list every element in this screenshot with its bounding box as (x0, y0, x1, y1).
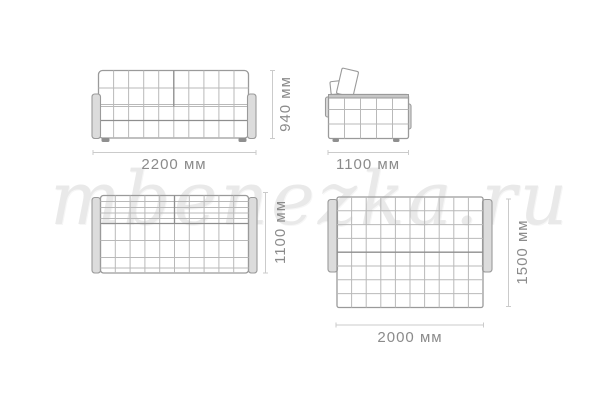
side-body-outline (329, 95, 409, 139)
folded-fold-edge-line (101, 196, 249, 224)
front-leg-left (102, 138, 110, 142)
front-height-dimension-line (270, 71, 275, 139)
folded-depth-dimension-line (263, 193, 268, 274)
side-leg-left (333, 139, 340, 143)
unfolded-width-dimension-line (336, 323, 484, 328)
front-armrest-right (248, 94, 257, 139)
sofa-top-view-folded-drawing (92, 193, 268, 274)
sofa-dimensions-diagram: mbenezka.ru (0, 0, 600, 400)
side-width-label: 1100 мм (308, 156, 428, 174)
unfolded-depth-label: 1500 мм (514, 212, 532, 292)
unfolded-armrest-right (483, 200, 493, 273)
sofa-side-view-drawing (326, 68, 412, 155)
technical-drawing-layer (0, 0, 600, 400)
unfolded-armrest-left (328, 200, 338, 273)
front-leg-right (239, 138, 247, 142)
folded-armrest-left (92, 198, 101, 274)
folded-depth-label: 1100 мм (272, 192, 290, 272)
unfolded-width-label: 2000 мм (350, 329, 470, 347)
front-armrest-left (92, 94, 101, 139)
sofa-top-view-unfolded-drawing (328, 197, 511, 328)
side-armrest-top-strip (329, 95, 409, 99)
side-leg-right (393, 139, 400, 143)
side-width-dimension-line (328, 150, 409, 155)
front-width-label: 2200 мм (114, 156, 234, 174)
side-front-cushion (336, 68, 358, 97)
folded-armrest-right (249, 198, 258, 274)
unfolded-depth-dimension-line (506, 199, 511, 307)
front-width-dimension-line (93, 150, 256, 155)
sofa-front-view-drawing (92, 71, 275, 156)
front-height-label: 940 мм (277, 64, 295, 144)
